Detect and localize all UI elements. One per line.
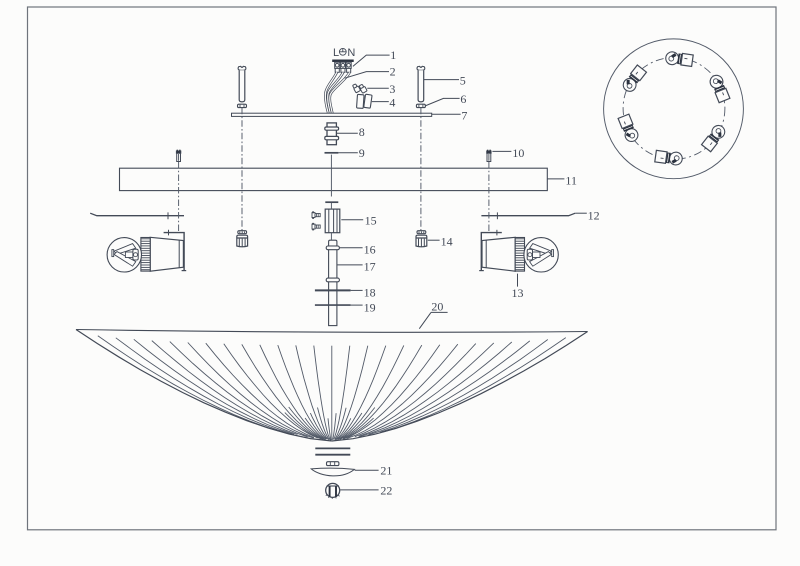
svg-text:8: 8 <box>359 125 365 139</box>
svg-text:18: 18 <box>364 285 376 299</box>
svg-text:21: 21 <box>380 464 392 478</box>
svg-text:12: 12 <box>588 208 600 222</box>
svg-text:13: 13 <box>512 286 524 300</box>
svg-text:N: N <box>347 47 355 59</box>
svg-text:20: 20 <box>431 300 443 314</box>
svg-text:2: 2 <box>390 65 396 79</box>
svg-text:9: 9 <box>359 146 365 160</box>
svg-text:19: 19 <box>364 300 376 314</box>
svg-text:14: 14 <box>441 235 453 249</box>
svg-text:3: 3 <box>389 82 395 96</box>
svg-text:L: L <box>333 47 339 59</box>
svg-text:1: 1 <box>390 48 396 62</box>
svg-text:22: 22 <box>380 483 392 497</box>
svg-text:17: 17 <box>364 259 376 273</box>
svg-text:10: 10 <box>512 146 524 160</box>
svg-text:15: 15 <box>365 213 377 227</box>
svg-text:7: 7 <box>461 108 467 122</box>
svg-text:11: 11 <box>565 173 577 187</box>
svg-text:4: 4 <box>389 95 395 109</box>
svg-text:5: 5 <box>460 73 466 87</box>
svg-text:6: 6 <box>460 92 466 106</box>
svg-text:16: 16 <box>364 242 376 256</box>
